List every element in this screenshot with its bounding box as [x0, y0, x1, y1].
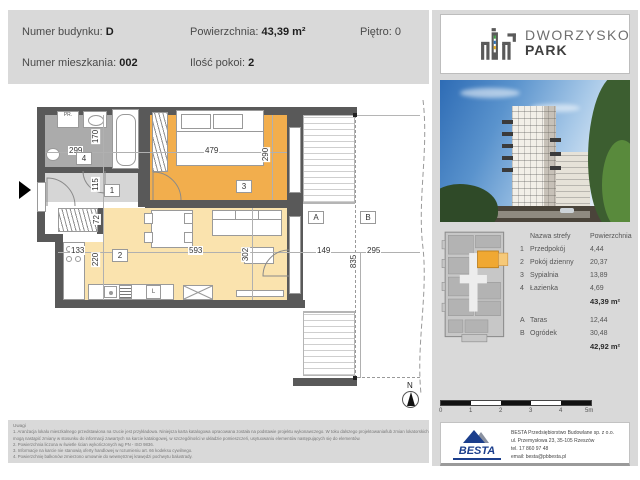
bathtub	[112, 109, 139, 169]
bedroom-wardrobe	[152, 112, 168, 172]
header: Numer budynku: D Powierzchnia: 43,39 m² …	[8, 10, 429, 84]
dim-hall-height: 115	[91, 177, 100, 192]
brand-logo: DWORZYSKO PARK	[440, 14, 630, 74]
render-lower-block	[556, 152, 590, 210]
chair	[184, 213, 193, 224]
apartment-number-value: 002	[119, 57, 137, 69]
table-row: 3Sypialnia13,89	[520, 269, 634, 282]
apartment-area: Powierzchnia: 43,39 m²	[190, 26, 306, 38]
note-line: 4. Powierzchnię balkonów zmierzono umown…	[13, 454, 429, 460]
dim-line	[252, 208, 253, 300]
dim-bedroom-width: 479	[204, 146, 219, 155]
room-label-hall: 1	[104, 184, 120, 197]
floor-value: 0	[395, 26, 401, 38]
apartment-number-label: Numer mieszkania:	[22, 57, 116, 69]
kitchen-hob	[119, 285, 132, 299]
entrance-arrow-icon	[19, 181, 31, 199]
tv-stand	[236, 290, 284, 297]
apartment-card: Numer budynku: D Powierzchnia: 43,39 m² …	[0, 0, 640, 480]
bed	[176, 110, 264, 166]
rooms-count-label: Ilość pokoi:	[190, 57, 245, 69]
besta-logo-text: BESTA	[453, 445, 501, 460]
chair	[144, 232, 153, 243]
dim-marker	[353, 113, 357, 117]
garden-dashed-divider	[355, 115, 356, 378]
area-label: Powierzchnia:	[190, 26, 258, 38]
dishwasher	[183, 285, 213, 300]
fridge: L	[146, 285, 161, 299]
apartment-number: Numer mieszkania: 002	[22, 57, 138, 69]
building-render-image	[440, 80, 630, 222]
living-window-frame	[289, 216, 301, 294]
note-line: 1. Aranżacja lokalu mieszkalnego przedst…	[13, 429, 429, 435]
scale-label: 0	[439, 408, 442, 414]
dim-line	[360, 252, 361, 378]
wall-bottom	[55, 300, 305, 308]
kitchen-sink	[104, 286, 117, 298]
room-label-bathroom: 4	[76, 152, 92, 165]
rooms-count-value: 2	[248, 57, 254, 69]
building-number-value: D	[106, 26, 114, 38]
notes-footer: Uwagi 1. Aranżacja lokalu mieszkalnego p…	[8, 420, 429, 463]
dim-line	[272, 115, 273, 200]
north-label: N	[407, 381, 413, 390]
brand-name-bottom: PARK	[525, 43, 630, 58]
washer-label: PR.	[64, 112, 72, 118]
key-plan-highlighted-unit	[478, 251, 499, 268]
table-total-inside: 43,39 m²	[520, 295, 634, 308]
entry-door-frame	[37, 182, 46, 212]
scale-label: 4	[559, 408, 562, 414]
dim-bedroom-height: 290	[261, 147, 270, 162]
col-area: Powierzchnia	[590, 233, 630, 240]
dim-living-height: 302	[241, 247, 250, 262]
zones-table: Nazwa strefy Powierzchnia 1Przedpokój4,4…	[520, 230, 634, 353]
table-row: ATaras12,44	[520, 314, 634, 327]
terrace-deck-south	[303, 312, 355, 376]
building-number-label: Numer budynku:	[22, 26, 103, 38]
garden-top-line	[357, 115, 420, 116]
chair	[184, 232, 193, 243]
dim-garden-height: 835	[349, 254, 358, 269]
dim-kitchen-height: 220	[91, 252, 100, 267]
north-arrow-icon	[407, 392, 415, 406]
render-tree-left	[440, 184, 498, 222]
developer-address: ul. Przemysłowa 23, 35-105 Rzeszów	[511, 437, 614, 445]
wall-bedroom-living	[145, 200, 287, 208]
room-label-bedroom: 3	[236, 180, 252, 193]
developer-box: BESTA BESTA Przedsiębiorstwo Budowlane s…	[440, 422, 630, 466]
area-value: 43,39	[262, 26, 290, 38]
dim-line	[103, 115, 104, 300]
stove-burner	[66, 256, 72, 262]
zones-table-header: Nazwa strefy Powierzchnia	[520, 230, 634, 243]
floor-label: Piętro:	[360, 26, 392, 38]
scale-label: 5m	[585, 408, 593, 414]
sofa	[212, 210, 282, 236]
dim-terrace-width: 149	[316, 246, 331, 255]
key-plan	[438, 228, 516, 346]
dim-living-width: 593	[188, 246, 203, 255]
table-row: 2Pokój dzienny20,37	[520, 256, 634, 269]
table-row: 4Łazienka4,69	[520, 282, 634, 295]
table-row: 1Przedpokój4,44	[520, 243, 634, 256]
wall-kitchen-left	[55, 234, 63, 308]
area-unit: m²	[292, 26, 305, 38]
developer-contact: BESTA Przedsiębiorstwo Budowlane sp. z o…	[511, 429, 614, 461]
toilet	[46, 148, 60, 161]
dim-kitchen-width: 133	[70, 246, 85, 255]
scale-bar	[440, 400, 592, 406]
wall-bathroom-bedroom	[138, 107, 150, 207]
floor-number: Piętro: 0	[360, 26, 401, 38]
room-label-living: 2	[112, 249, 128, 262]
chair	[144, 213, 153, 224]
table-total-outdoor: 42,92 m²	[520, 340, 634, 353]
washing-machine: PR.	[57, 111, 79, 128]
zone-label-garden: B	[360, 211, 376, 224]
dim-bathroom-height: 170	[91, 129, 100, 144]
developer-company: BESTA Przedsiębiorstwo Budowlane sp. z o…	[511, 429, 614, 437]
col-zone-name: Nazwa strefy	[530, 233, 590, 240]
balcony-door-frame	[289, 127, 301, 193]
fridge-label: L	[152, 289, 155, 295]
dim-wardrobe: 72	[92, 214, 101, 225]
stove-burner	[75, 256, 81, 262]
besta-logo-roof-icon	[463, 430, 485, 443]
side-panel: DWORZYSKO PARK	[432, 10, 638, 466]
garden-bottom-line	[357, 377, 420, 378]
terrace-deck-north	[303, 115, 355, 203]
developer-phone: tel. 17 860 97 48	[511, 445, 614, 453]
zone-label-terrace: A	[308, 211, 324, 224]
wall-terrace-bottom	[293, 378, 357, 386]
dim-garden-width: 295	[366, 246, 381, 255]
table-row: BOgródek30,48	[520, 327, 634, 340]
scale-label: 2	[499, 408, 502, 414]
scale-label: 3	[529, 408, 532, 414]
brand-building-icon	[481, 26, 517, 64]
garden-wavy-border	[420, 100, 425, 394]
scale-label: 1	[469, 408, 472, 414]
rooms-count: Ilość pokoi: 2	[190, 57, 254, 69]
dim-marker	[353, 376, 357, 380]
building-number: Numer budynku: D	[22, 26, 114, 38]
developer-email: email: besta@pbbesta.pl	[511, 453, 614, 461]
wall-left-upper	[37, 107, 45, 183]
brand-name-top: DWORZYSKO	[525, 28, 630, 43]
